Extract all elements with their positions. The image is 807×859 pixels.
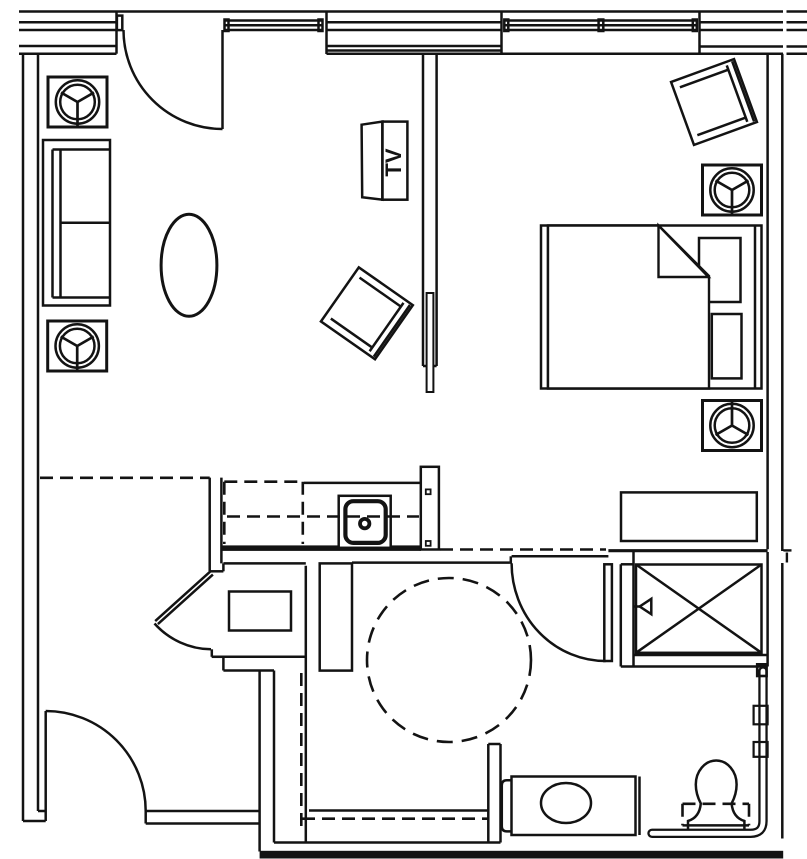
svg-text:TV: TV xyxy=(381,148,406,176)
